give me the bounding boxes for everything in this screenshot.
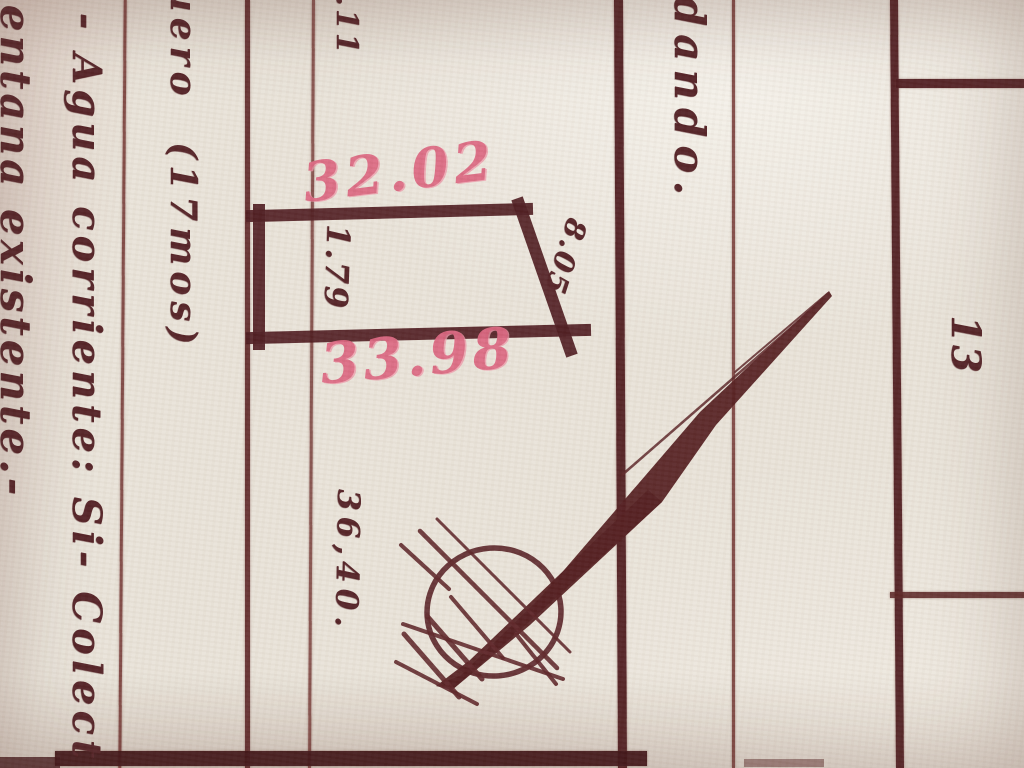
label-top-fragment: .11 <box>321 0 361 71</box>
needle-hairlines <box>622 293 828 475</box>
label-dim-36-40: 36,40. <box>320 466 363 657</box>
label-column-agua-corriente: - Agua corriente: Si- Colect <box>62 0 106 768</box>
label-column-existente: entana existente.- <box>0 0 36 512</box>
survey-sketch-photo: .11 uero (17mos) dando. entana existente… <box>0 0 1024 768</box>
label-column-17mos: uero (17mos) <box>157 0 201 363</box>
label-lot-number-13: 13 <box>941 300 985 390</box>
label-column-dando: dando. <box>666 0 710 230</box>
